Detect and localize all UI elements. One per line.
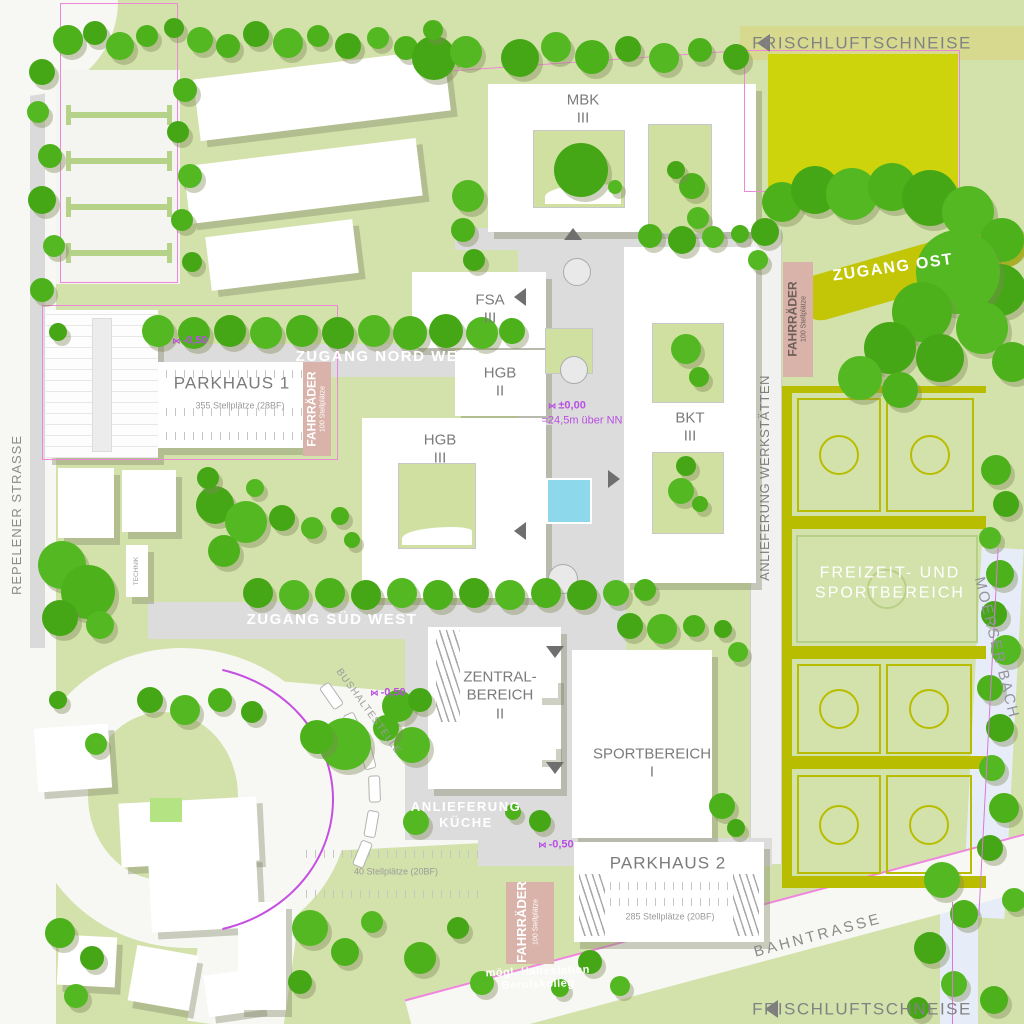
parkhaus2-label: PARKHAUS 2 bbox=[610, 854, 726, 875]
tree bbox=[714, 620, 732, 638]
tree bbox=[709, 793, 735, 819]
olive-band-3 bbox=[782, 756, 986, 769]
tree bbox=[979, 527, 1001, 549]
tree bbox=[273, 28, 303, 58]
olive-band-2 bbox=[782, 646, 986, 659]
tree bbox=[225, 501, 267, 543]
zugang-nord-west-label: ZUGANG NORD WEST bbox=[296, 348, 481, 366]
mbk-courtyard-2 bbox=[648, 124, 712, 234]
anlieferung-kueche-label: ANLIEFERUNGKÜCHE bbox=[411, 799, 521, 831]
anlieferung-werkstaetten-label: ANLIEFERUNG WERKSTÄTTEN bbox=[757, 375, 773, 581]
level-minus-south: ⋈ -0,50 bbox=[538, 838, 573, 851]
tree bbox=[361, 911, 383, 933]
tree bbox=[864, 322, 916, 374]
haltestation-label: mögl. HaltestationBerufskolleg bbox=[485, 964, 590, 994]
tree bbox=[301, 517, 323, 539]
tree bbox=[501, 39, 539, 77]
existing-building bbox=[205, 219, 358, 291]
tree bbox=[344, 532, 360, 548]
freizeit-sportbereich-label: FREIZEIT- UNDSPORTBEREICH bbox=[815, 563, 965, 602]
existing-building bbox=[34, 723, 112, 792]
stair-circle bbox=[563, 258, 591, 286]
tree bbox=[243, 21, 269, 47]
stair-circle bbox=[560, 356, 588, 384]
site-plan: FRISCHLUFTSCHNEISE FRISCHLUFTSCHNEISE ZU… bbox=[0, 0, 1024, 1024]
zugang-sued-west-label: ZUGANG SÜD WEST bbox=[247, 611, 418, 629]
entrance-arrow-down bbox=[546, 762, 564, 774]
olive-band-1 bbox=[782, 516, 986, 529]
existing-courtyard bbox=[150, 798, 182, 822]
bkt-label: BKTIII bbox=[675, 410, 704, 447]
tree bbox=[956, 302, 1008, 354]
lot40-capacity: 40 Stellplätze (20BF) bbox=[354, 867, 438, 878]
hgb3-label: HGBIII bbox=[424, 432, 457, 469]
olive-band-left bbox=[782, 388, 792, 888]
tree bbox=[450, 36, 482, 68]
entrance-arrow-left bbox=[514, 522, 526, 540]
tree bbox=[216, 34, 240, 58]
bike-west-capacity: 100 Stellplätze bbox=[320, 386, 329, 432]
zentralbereich-label: ZENTRAL-BEREICHII bbox=[463, 669, 536, 724]
parking-stalls bbox=[610, 882, 730, 890]
tree bbox=[727, 819, 745, 837]
tree bbox=[980, 986, 1008, 1014]
entrance-arrow-left bbox=[514, 288, 526, 306]
parkhaus1-capacity: 355 Stellplätze (28BF) bbox=[195, 401, 284, 412]
tree bbox=[331, 938, 359, 966]
tree bbox=[86, 611, 114, 639]
benchmark-icon: ⋈ bbox=[172, 336, 182, 345]
tree bbox=[992, 342, 1024, 382]
sport-court bbox=[886, 398, 974, 512]
boundary-top bbox=[452, 50, 747, 72]
existing-building bbox=[183, 138, 422, 224]
tree bbox=[981, 455, 1011, 485]
tree bbox=[575, 40, 609, 74]
tree bbox=[423, 20, 443, 40]
tree bbox=[838, 356, 882, 400]
bike-south-capacity: 100 Stellplätze bbox=[533, 899, 542, 945]
frischluftschneise-top-label: FRISCHLUFTSCHNEISE bbox=[752, 34, 972, 55]
bkt-courtyard-1 bbox=[652, 323, 724, 403]
parking-stalls bbox=[306, 850, 478, 858]
existing-building bbox=[193, 49, 451, 141]
building-sportbereich bbox=[572, 650, 712, 838]
sport-court bbox=[797, 775, 881, 874]
benchmark-icon: ⋈ bbox=[538, 840, 548, 849]
parkhaus1-label: PARKHAUS 1 bbox=[174, 374, 290, 395]
level-zero-sub: =24,5m über NN bbox=[541, 414, 622, 427]
tree bbox=[916, 334, 964, 382]
entrance-arrow-up bbox=[564, 228, 582, 240]
sport-court bbox=[886, 775, 972, 874]
tree bbox=[683, 615, 705, 637]
sportbereich-label: SPORTBEREICHI bbox=[593, 746, 711, 783]
bike-east-label: FAHRRÄDER bbox=[786, 281, 801, 356]
tree bbox=[447, 917, 469, 939]
tree bbox=[61, 565, 115, 619]
parking-stalls bbox=[306, 890, 478, 898]
parking-stalls bbox=[610, 898, 730, 906]
tree bbox=[647, 614, 677, 644]
tree bbox=[367, 27, 389, 49]
sport-court bbox=[797, 398, 881, 512]
fsa-label: FSAIII bbox=[475, 292, 504, 329]
tree bbox=[688, 38, 712, 62]
tree bbox=[541, 32, 571, 62]
level-minus-bus: ⋈ -0,50 bbox=[370, 686, 405, 699]
bike-east-capacity: 100 Stellplätze bbox=[801, 296, 810, 342]
tree bbox=[728, 642, 748, 662]
spine-kiosk bbox=[536, 676, 558, 698]
repelener-strasse-label: REPELENER STRASSE bbox=[9, 435, 25, 595]
existing-building bbox=[57, 935, 118, 988]
sport-court bbox=[797, 664, 881, 754]
tree bbox=[404, 942, 436, 974]
boundary-lot bbox=[60, 3, 178, 283]
bike-south-label: FAHRRÄDER bbox=[514, 881, 530, 963]
entrance-arrow-down bbox=[546, 646, 564, 658]
olive-band-bottom bbox=[782, 876, 986, 888]
hgb2-label: HGBII bbox=[484, 365, 517, 402]
benchmark-icon: ⋈ bbox=[370, 688, 380, 697]
spine-kiosk bbox=[536, 742, 556, 760]
tree bbox=[269, 505, 295, 531]
bkt-courtyard-2 bbox=[652, 452, 724, 534]
parkhaus2-capacity: 285 Stellplätze (20BF) bbox=[625, 912, 714, 923]
tree bbox=[307, 25, 329, 47]
existing-building bbox=[128, 945, 199, 1011]
sport-court bbox=[886, 664, 972, 754]
existing-building bbox=[58, 468, 114, 538]
tree bbox=[208, 535, 240, 567]
technik-label: TECHNIK bbox=[133, 557, 141, 586]
parkhaus2-ramp-east bbox=[733, 874, 759, 936]
tree bbox=[197, 467, 219, 489]
level-minus-nw: ⋈ -0,50 bbox=[172, 334, 207, 347]
tree bbox=[64, 984, 88, 1008]
benchmark-icon: ⋈ bbox=[548, 401, 558, 410]
existing-building bbox=[122, 470, 176, 532]
water-pool bbox=[546, 478, 592, 524]
tree bbox=[331, 507, 349, 525]
mbk-label: MBKIII bbox=[567, 92, 600, 129]
entrance-arrow-right bbox=[608, 470, 620, 488]
tree bbox=[463, 249, 485, 271]
tree bbox=[993, 491, 1019, 517]
tree bbox=[358, 315, 390, 347]
tree bbox=[182, 252, 202, 272]
parkhaus2-ramp-west bbox=[579, 874, 605, 936]
bike-west-label: FAHRRÄDER bbox=[305, 371, 320, 446]
tree bbox=[335, 33, 361, 59]
boundary-yellow-field bbox=[744, 50, 960, 192]
zentral-stair bbox=[436, 630, 460, 722]
tree bbox=[452, 180, 484, 212]
olive-band-top bbox=[782, 386, 986, 393]
level-zero: ⋈ ±0,00 bbox=[548, 399, 586, 412]
tree bbox=[187, 27, 213, 53]
frischluftschneise-bottom-label: FRISCHLUFTSCHNEISE bbox=[752, 1000, 972, 1021]
stair-circle bbox=[548, 564, 578, 594]
tree bbox=[288, 970, 312, 994]
tree bbox=[649, 43, 679, 73]
tree bbox=[246, 479, 264, 497]
tree bbox=[196, 486, 234, 524]
